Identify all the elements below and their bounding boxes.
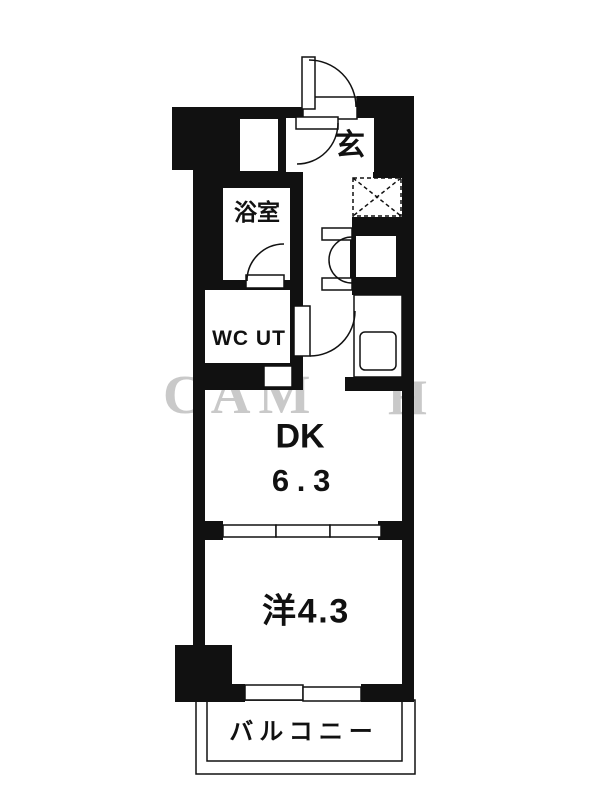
utility-fixture xyxy=(264,366,292,387)
wc-ut-label: WC UT xyxy=(212,327,286,351)
dk-door xyxy=(294,306,355,356)
meter-box-hatch xyxy=(353,178,401,216)
balcony-label: バルコニー xyxy=(229,712,379,747)
entrance-closet xyxy=(240,119,278,171)
kitchen-counter xyxy=(354,295,402,377)
kitchen-sink xyxy=(360,332,396,370)
entrance-door xyxy=(302,57,357,119)
floor-plan: CAM H xyxy=(0,0,600,800)
dk-size-label: 6.3 xyxy=(272,463,338,499)
dk-label: DK xyxy=(275,418,324,457)
floor-plan-drawing: CAM H xyxy=(0,0,600,800)
pillar xyxy=(175,645,232,702)
western-room-label: 洋4.3 xyxy=(262,584,350,633)
storage-double-door xyxy=(322,228,402,290)
bathroom-label: 浴室 xyxy=(234,193,280,227)
genkan-label: 玄 xyxy=(335,120,365,164)
balcony-window xyxy=(245,685,361,701)
sliding-door-partition xyxy=(223,525,381,537)
bathroom-door xyxy=(246,244,284,288)
